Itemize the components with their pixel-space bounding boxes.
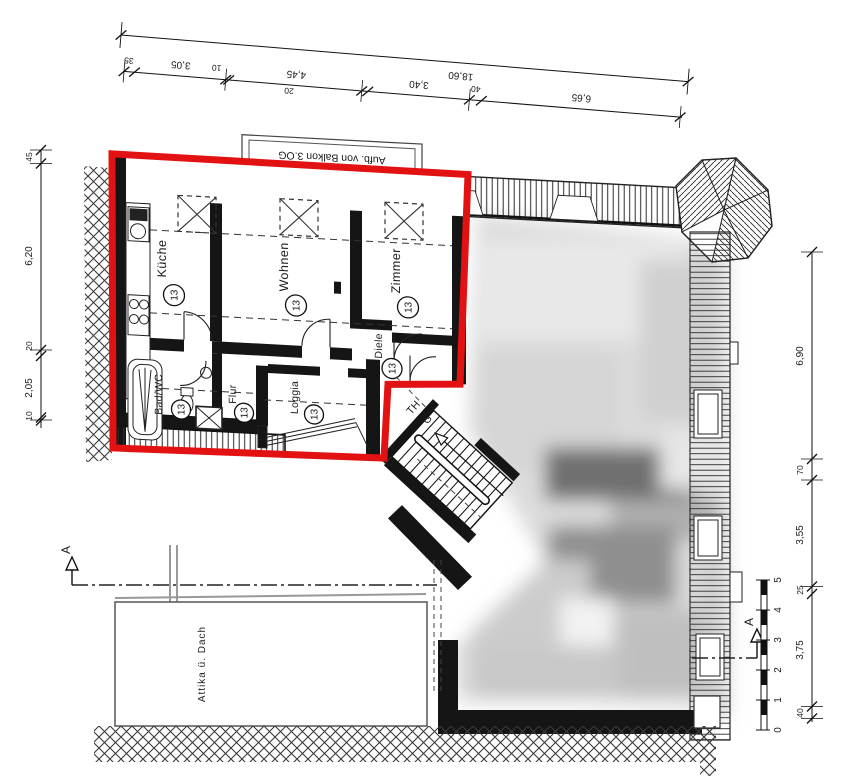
dim-top-40: 40 bbox=[470, 84, 481, 95]
dim-left-45: 45 bbox=[24, 152, 34, 162]
svg-text:13: 13 bbox=[388, 362, 399, 374]
dim-right-690: 6,90 bbox=[795, 346, 806, 366]
floorplan-drawing: Aufb. von Balkon 3.OG bbox=[0, 0, 842, 784]
dimension-chain-right: 6,90 70 3,55 25 3,75 40 bbox=[795, 247, 823, 724]
dim-left-10: 10 bbox=[24, 411, 34, 421]
scale-0: 0 bbox=[773, 727, 784, 733]
dim-left-205: 2,05 bbox=[24, 378, 35, 398]
attika-area: Attika ü. Dach bbox=[115, 594, 427, 726]
svg-text:Wohnen: Wohnen bbox=[277, 242, 291, 292]
scale-bar: 0 1 2 3 4 5 bbox=[756, 577, 784, 733]
scale-2: 2 bbox=[773, 667, 784, 673]
svg-text:13: 13 bbox=[292, 299, 303, 311]
dim-right-375: 3,75 bbox=[795, 640, 806, 660]
dimension-chain-top: 18,60 35 3,05 10 4,45 20 3,40 40 6,65 bbox=[112, 22, 694, 129]
dim-left-20: 20 bbox=[24, 341, 34, 351]
scale-5: 5 bbox=[773, 577, 784, 583]
dim-right-355: 3,55 bbox=[795, 525, 806, 545]
roof-skylight bbox=[694, 390, 724, 680]
dim-top-20: 20 bbox=[284, 86, 295, 97]
svg-text:13: 13 bbox=[404, 301, 415, 313]
svg-text:Diele: Diele bbox=[373, 333, 385, 359]
dim-right-70: 70 bbox=[795, 465, 805, 475]
attika-label: Attika ü. Dach bbox=[197, 626, 208, 702]
floorplan-sheet: Aufb. von Balkon 3.OG bbox=[0, 0, 842, 784]
dim-top-total: 18,60 bbox=[447, 69, 473, 82]
dim-top-445: 4,45 bbox=[286, 68, 307, 81]
scale-4: 4 bbox=[773, 607, 784, 613]
svg-text:13: 13 bbox=[170, 289, 181, 301]
dim-top-665: 6,65 bbox=[571, 91, 592, 104]
section-label-left: A bbox=[59, 546, 73, 554]
scale-1: 1 bbox=[773, 697, 784, 703]
svg-text:Flur: Flur bbox=[227, 384, 239, 404]
svg-text:Bad/WC: Bad/WC bbox=[153, 373, 165, 415]
svg-text:13: 13 bbox=[240, 407, 251, 419]
svg-text:Zimmer: Zimmer bbox=[389, 248, 403, 294]
roof-band-right bbox=[690, 232, 742, 740]
dim-top-305: 3,05 bbox=[170, 58, 191, 71]
dim-top-10: 10 bbox=[211, 63, 222, 74]
svg-text:13: 13 bbox=[310, 408, 321, 420]
hatch-left bbox=[84, 166, 112, 462]
scale-3: 3 bbox=[773, 637, 784, 643]
dim-right-25: 25 bbox=[795, 585, 805, 595]
roof-window bbox=[550, 195, 598, 222]
dim-left-620: 6,20 bbox=[24, 246, 35, 266]
svg-text:13: 13 bbox=[177, 403, 188, 415]
hatch-bottom bbox=[94, 726, 716, 762]
dim-top-35: 35 bbox=[124, 55, 135, 66]
dim-top-340: 3,40 bbox=[408, 78, 429, 91]
hatch-bottom-right bbox=[700, 726, 716, 776]
section-label-right: A bbox=[742, 618, 756, 626]
svg-text:Küche: Küche bbox=[155, 239, 169, 278]
shaft bbox=[196, 406, 222, 429]
dim-right-40: 40 bbox=[795, 708, 805, 718]
svg-text:Loggia: Loggia bbox=[289, 380, 301, 414]
dimension-chain-left: 45 6,20 20 2,05 10 bbox=[24, 145, 52, 428]
